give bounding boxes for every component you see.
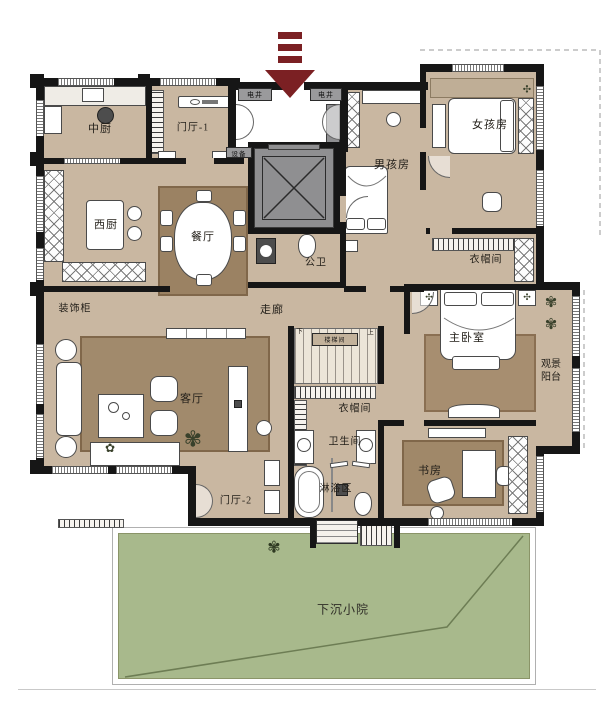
wardrobe [508, 436, 528, 514]
room-label-living: 客厅 [180, 390, 204, 406]
dining-chair [196, 190, 212, 202]
room-label-boy: 男孩房 [374, 156, 410, 172]
entrance-arrow-icon [278, 56, 302, 63]
window [536, 456, 544, 512]
table-decor [108, 402, 119, 413]
entrance-arrow-icon [278, 44, 302, 51]
elevator-door [268, 144, 320, 150]
window [52, 466, 108, 474]
window [536, 86, 544, 150]
room-label-mid-closet: 衣帽间 [339, 400, 372, 415]
window [116, 466, 172, 474]
desk-chair [386, 112, 401, 127]
balcony-label-line2: 阳台 [537, 371, 565, 384]
shaft-right-label: 电井 [318, 90, 334, 100]
wall-segment [420, 152, 426, 190]
window [452, 64, 504, 72]
window [64, 158, 120, 164]
column [138, 74, 150, 86]
wall-segment [378, 420, 384, 526]
room-label-public-wc: 公卫 [305, 254, 327, 269]
floor-plan: 电井 电井 设备 ✣ [0, 0, 611, 715]
stool [127, 206, 142, 221]
nightstand [344, 240, 358, 252]
window [36, 344, 44, 404]
room-label-master: 主卧室 [449, 329, 485, 345]
window [58, 78, 114, 86]
stairwell-label-box: 楼梯间 [312, 333, 358, 346]
room-label-courtyard: 下沉小院 [317, 601, 369, 618]
window [36, 100, 44, 136]
wall-segment [248, 228, 340, 234]
pillow [444, 292, 477, 306]
lamp-icon: ✣ [523, 293, 531, 303]
door-opening [186, 158, 214, 164]
room-label-study: 书房 [418, 462, 442, 478]
coffee-table [98, 394, 144, 438]
column [30, 152, 44, 166]
wall-segment [42, 286, 170, 292]
bookshelf [428, 428, 486, 438]
armchair [150, 376, 178, 402]
kitchen-sink [82, 88, 104, 102]
wall-segment [394, 518, 400, 548]
emblem-text-icon [202, 100, 218, 104]
headboard-bench [448, 404, 500, 418]
wall-segment [188, 466, 196, 526]
tv-icon [234, 400, 242, 408]
wall-segment [146, 82, 152, 162]
plant-icon: ✿ [105, 441, 115, 455]
stair-down-label: 下 [296, 325, 304, 335]
bed-bench [452, 356, 500, 370]
column [30, 282, 44, 296]
stair-up-label: 上 [367, 326, 375, 336]
wall-segment [248, 282, 346, 288]
entrance-arrow-icon [265, 70, 315, 98]
hallway-cabinet [150, 90, 164, 154]
wall-segment [404, 284, 538, 290]
stove [44, 106, 62, 134]
plant-icon: ✾ [545, 293, 558, 311]
tall-cabinet [44, 170, 64, 262]
daybed [90, 442, 180, 466]
column [30, 74, 44, 88]
dining-chair [233, 236, 246, 252]
desk [362, 90, 422, 104]
side-table [55, 436, 77, 458]
ground-line [18, 689, 596, 690]
wall-segment [228, 82, 236, 152]
window [572, 296, 580, 356]
column [30, 460, 44, 474]
room-label-dining: 餐厅 [191, 228, 215, 244]
wall-segment [420, 72, 426, 128]
pillow [481, 292, 514, 306]
desk [462, 450, 496, 498]
room-label-balcony: 观景 阳台 [537, 358, 565, 384]
side-table [55, 339, 77, 361]
room-label-foyer2: 门厅-2 [220, 492, 252, 507]
room-label-girl-closet: 衣帽间 [470, 251, 503, 266]
entrance-arrow-icon [278, 32, 302, 39]
wardrobe [518, 98, 534, 154]
door-opening [404, 420, 424, 426]
brand-emblem [178, 96, 230, 108]
shoe-cabinet [264, 460, 280, 486]
outside-bottom-left [36, 474, 188, 522]
exterior-sill [58, 519, 124, 528]
lamp-icon: ✣ [425, 293, 433, 303]
counter-cabinet [62, 262, 146, 282]
sink [297, 438, 311, 452]
shaft-left-label: 电井 [247, 90, 263, 100]
sofa [56, 362, 82, 436]
flower-icon: ✣ [523, 85, 531, 96]
tv-cabinet [228, 366, 248, 452]
dining-chair [233, 210, 246, 226]
room-label-bathroom: 卫生间 [329, 433, 362, 448]
exterior-steps [316, 520, 358, 544]
console-table [166, 328, 246, 339]
door-opening [430, 228, 452, 234]
door-opening [340, 196, 346, 222]
plant-icon: ✾ [267, 538, 280, 557]
dining-chair [196, 274, 212, 286]
room-label-deco-cabinet: 装饰柜 [59, 300, 92, 315]
equipment-label: 设备 [232, 148, 247, 158]
sink [259, 244, 273, 258]
wall-segment [344, 82, 428, 90]
stool [127, 226, 142, 241]
window [572, 368, 580, 432]
door-opening [366, 286, 390, 292]
room-label-kitchen-west: 西厨 [94, 216, 118, 232]
pillow [346, 218, 365, 230]
wall-segment [378, 326, 384, 384]
closet-top [430, 78, 534, 98]
bathtub-basin [298, 471, 320, 513]
emblem-oval-icon [190, 99, 200, 105]
dining-chair [160, 210, 173, 226]
room-label-kitchen-cn: 中厨 [88, 120, 112, 136]
window [36, 414, 44, 458]
pillow [367, 218, 386, 230]
dining-chair [160, 236, 173, 252]
elevator-car [262, 156, 326, 220]
table-decor [122, 412, 130, 420]
room-label-shower: 淋浴区 [320, 480, 353, 495]
wall-segment [404, 290, 410, 334]
toilet [354, 492, 372, 516]
balcony-label-line1: 观景 [537, 358, 565, 371]
shoe-cabinet [264, 490, 280, 514]
window [36, 176, 44, 232]
wardrobe [514, 238, 534, 282]
window [428, 518, 512, 526]
wall-segment [288, 326, 294, 526]
window [536, 170, 544, 226]
stairwell-label: 楼梯间 [324, 335, 345, 344]
armchair [150, 410, 178, 436]
plant-icon: ✾ [184, 428, 202, 453]
window [160, 78, 216, 86]
equipment-box: 设备 [226, 147, 252, 158]
side-table [256, 420, 272, 436]
room-label-girl: 女孩房 [472, 116, 508, 132]
clothes-rack [294, 386, 376, 399]
window [36, 248, 44, 280]
room-label-corridor: 走廊 [260, 301, 284, 317]
chair [482, 192, 502, 212]
bench [432, 104, 446, 148]
room-label-foyer1: 门厅-1 [177, 119, 209, 134]
plant-icon: ✾ [545, 315, 558, 333]
